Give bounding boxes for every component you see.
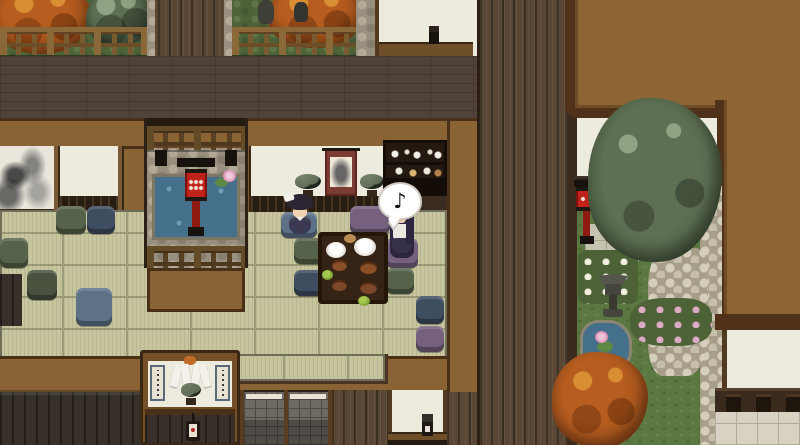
npc-seated-girl[interactable]	[282, 194, 318, 240]
south-wall-panel	[388, 390, 447, 445]
panel-face	[388, 390, 447, 432]
small-lantern-icon	[422, 414, 433, 436]
garden-rock-icon	[258, 0, 274, 24]
stone-lantern	[596, 274, 630, 318]
stone-edge	[147, 0, 155, 56]
plank-corridor-east	[477, 0, 568, 445]
shrine-alcove[interactable]	[140, 350, 240, 445]
interior-wall-band-east	[447, 118, 477, 392]
panel-base	[388, 440, 447, 445]
hanging-scroll	[325, 148, 357, 196]
speech-bubble: ♪	[380, 184, 420, 218]
planter-north-west	[0, 0, 147, 56]
door-slit	[290, 394, 326, 399]
wall-ledge	[379, 42, 473, 56]
se-wall	[722, 330, 800, 388]
stone-edge	[224, 0, 232, 56]
food-bowl	[360, 282, 377, 294]
food-bowl	[332, 260, 347, 271]
lantern-body	[185, 169, 207, 201]
food-bowl	[332, 280, 347, 291]
se-beam-row	[715, 388, 800, 412]
door-shade	[244, 420, 284, 445]
lotus-flower-icon	[595, 331, 608, 343]
music-note-icon: ♪	[393, 191, 406, 212]
garden-tree	[588, 98, 722, 262]
post-stub	[225, 150, 237, 166]
green-fruit	[322, 270, 333, 280]
scroll-painting	[330, 157, 352, 187]
se-tile-floor	[715, 412, 800, 445]
floor-cushion	[76, 288, 112, 326]
plate-rice	[326, 242, 346, 258]
calligraphy-scroll	[150, 365, 165, 401]
floor-cushion	[416, 326, 444, 352]
low-table[interactable]	[318, 232, 388, 304]
bonsai-pot	[186, 398, 196, 405]
stone-lantern-cap	[598, 274, 628, 284]
beam-bracket	[726, 394, 741, 412]
stone-lantern-base	[603, 309, 623, 317]
stone-lantern-head	[605, 284, 621, 295]
courtyard-beam	[147, 118, 245, 126]
engawa-walkway	[0, 56, 477, 118]
floor-cushion	[0, 238, 28, 268]
game-viewport[interactable]: ♪	[0, 0, 800, 445]
bonsai-foliage	[360, 174, 384, 189]
left-room-wall-panel	[60, 146, 118, 196]
floor-cushion	[27, 270, 57, 300]
beam-bracket	[756, 394, 771, 412]
planter-north-mid	[232, 0, 356, 56]
garden-fence	[232, 27, 356, 55]
lantern-post	[192, 201, 200, 229]
plank-path-north	[147, 0, 232, 56]
floor-cushion	[416, 296, 444, 324]
floor-cushion	[56, 206, 86, 234]
red-lantern	[177, 158, 215, 238]
se-roof-edge	[715, 314, 800, 330]
courtyard-fence-north	[147, 126, 245, 150]
beam-bracket	[786, 394, 800, 412]
scroll-rod	[322, 148, 360, 151]
bun-food	[344, 234, 356, 243]
autumn-bush	[552, 352, 648, 445]
lantern-mark	[425, 426, 430, 432]
door-shade	[288, 420, 328, 445]
roof-east	[715, 100, 800, 322]
garden-rock-icon	[294, 2, 308, 22]
post-stub	[155, 150, 167, 166]
pink-flower-bush	[630, 298, 712, 346]
plate-rice	[354, 238, 376, 256]
courtyard	[147, 118, 245, 268]
north-wall-panel	[375, 0, 485, 56]
small-lantern-icon	[429, 26, 439, 44]
lantern-mark	[191, 428, 195, 432]
wall-ledge	[388, 432, 447, 440]
ink-painting-panel	[0, 146, 54, 212]
hanging-lantern	[185, 413, 201, 443]
garden-fence	[0, 27, 147, 55]
floor-cushion	[87, 206, 115, 234]
shoji-door-panel[interactable]	[288, 392, 328, 445]
floor-opening	[0, 274, 22, 326]
tatami-notch	[218, 354, 388, 384]
bonsai-foliage	[181, 383, 201, 397]
door-slit	[246, 394, 282, 399]
bonsai-foliage	[295, 174, 321, 189]
lantern-base	[188, 227, 204, 236]
wall-band-courtyard-south	[147, 268, 245, 312]
lantern-bracket	[177, 158, 215, 167]
bonsai-plant	[181, 383, 201, 407]
lantern-post	[583, 211, 590, 237]
frame-line	[144, 118, 147, 268]
courtyard-fence-south	[147, 246, 245, 268]
lotus-flower-icon	[223, 170, 236, 182]
stone-pillar	[356, 0, 375, 56]
corridor-south-patch	[447, 392, 477, 445]
shoji-doors[interactable]	[240, 390, 332, 445]
stone-lantern-stem	[609, 295, 617, 309]
frame-line	[245, 118, 248, 268]
calligraphy-scroll	[215, 365, 230, 401]
south-wood-paneling	[0, 392, 140, 445]
green-fruit	[358, 296, 370, 306]
bonsai-pot	[367, 190, 377, 197]
shoji-door-panel[interactable]	[244, 392, 284, 445]
lantern-base	[580, 236, 594, 244]
south-plank-section	[332, 390, 388, 445]
lantern-cord	[192, 413, 194, 421]
food-bowl	[360, 262, 377, 274]
floor-cushion	[386, 268, 414, 294]
